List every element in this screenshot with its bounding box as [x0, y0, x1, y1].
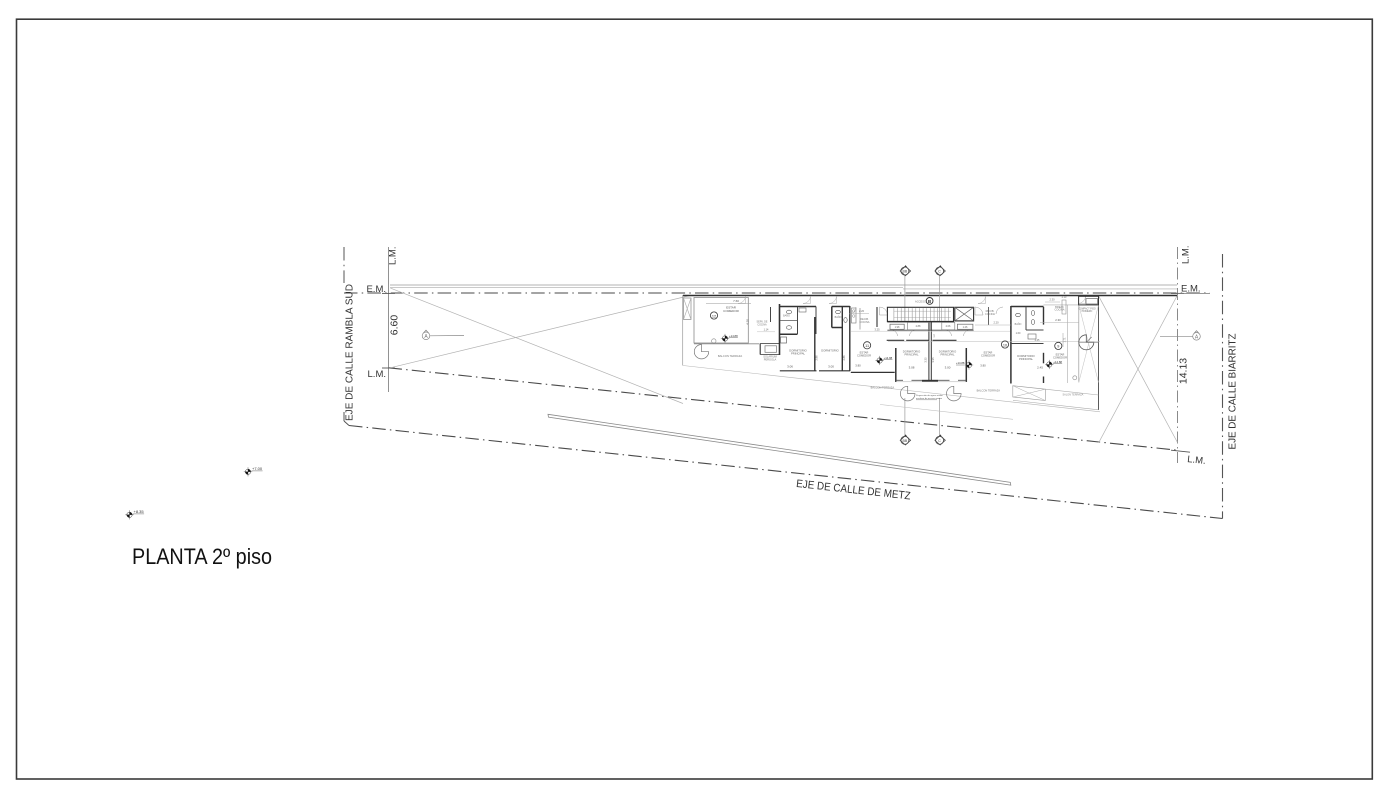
svg-text:2.06: 2.06: [946, 325, 951, 328]
svg-text:2.20: 2.20: [993, 321, 999, 325]
svg-text:COCINA: COCINA: [985, 312, 995, 316]
svg-text:SALON TERRAZA: SALON TERRAZA: [1063, 394, 1084, 397]
svg-text:PRINCIPAL: PRINCIPAL: [941, 353, 955, 357]
svg-text:1.14: 1.14: [764, 329, 769, 332]
svg-text:BAÑO: BAÑO: [835, 316, 842, 319]
svg-text:2.10: 2.10: [1062, 296, 1067, 299]
svg-text:C: C: [938, 270, 941, 274]
svg-text:COCINA: COCINA: [757, 323, 767, 326]
svg-text:L.M.: L.M.: [1187, 454, 1207, 467]
svg-text:BB: BB: [903, 270, 908, 274]
svg-text:COCINA: COCINA: [1054, 308, 1064, 312]
svg-text:2.86: 2.86: [815, 355, 819, 361]
svg-text:14.13: 14.13: [1178, 358, 1190, 384]
svg-text:COMEDOR: COMEDOR: [1053, 356, 1067, 360]
svg-text:escalera de acceso azotea: escalera de acceso azotea: [916, 397, 943, 400]
svg-text:BB: BB: [903, 439, 908, 443]
svg-text:12: 12: [712, 314, 716, 318]
svg-text:Proyección de aguas arriba: Proyección de aguas arriba: [916, 394, 943, 397]
svg-text:3.00: 3.00: [945, 366, 951, 370]
svg-text:PRIMERO: PRIMERO: [1082, 311, 1093, 313]
svg-text:+14.88: +14.88: [729, 334, 738, 338]
svg-text:PRINCIPAL: PRINCIPAL: [905, 353, 919, 357]
svg-text:3.00: 3.00: [828, 364, 834, 368]
svg-text:BAÑO: BAÑO: [783, 315, 790, 318]
svg-text:3.80: 3.80: [980, 364, 986, 368]
svg-text:L.M.: L.M.: [1181, 246, 1192, 264]
svg-text:E.M.: E.M.: [1181, 284, 1201, 295]
svg-text:L.M.: L.M.: [388, 247, 399, 265]
svg-text:2.88: 2.88: [916, 325, 921, 328]
svg-text:3.35: 3.35: [931, 357, 935, 363]
svg-text:2.45: 2.45: [1035, 339, 1040, 342]
svg-text:PERGOLA: PERGOLA: [764, 357, 777, 361]
svg-text:1.26: 1.26: [963, 326, 968, 329]
svg-text:3.08: 3.08: [909, 366, 915, 370]
svg-text:2.45: 2.45: [1037, 366, 1043, 370]
svg-text:10: 10: [1003, 343, 1007, 347]
svg-text:C: C: [938, 439, 941, 443]
svg-text:BALCON TERRAZA: BALCON TERRAZA: [871, 385, 895, 389]
svg-text:+8.35: +8.35: [134, 509, 145, 514]
svg-text:2.30: 2.30: [1055, 318, 1061, 322]
svg-text:+14.88: +14.88: [1053, 360, 1062, 364]
svg-text:1.60: 1.60: [1016, 332, 1021, 335]
svg-text:9: 9: [1057, 345, 1059, 349]
svg-text:+7.00: +7.00: [252, 466, 263, 471]
svg-text:PLANTA 2º piso: PLANTA 2º piso: [132, 544, 272, 569]
svg-text:3.06: 3.06: [787, 364, 793, 368]
svg-text:L.M.: L.M.: [368, 369, 386, 380]
svg-text:6.60: 6.60: [389, 315, 401, 336]
svg-text:BALCON TERRAZA: BALCON TERRAZA: [718, 354, 742, 358]
svg-text:BAÑO: BAÑO: [1015, 323, 1022, 326]
svg-text:ACCESO: ACCESO: [915, 299, 926, 303]
svg-text:COMEDOR: COMEDOR: [723, 309, 740, 313]
svg-text:3.80: 3.80: [855, 364, 861, 368]
svg-text:7.60: 7.60: [733, 299, 739, 303]
svg-text:11: 11: [865, 344, 869, 348]
svg-text:1.98: 1.98: [895, 326, 900, 329]
svg-text:2.30: 2.30: [1049, 298, 1055, 302]
svg-text:2.20: 2.20: [859, 309, 865, 313]
svg-text:+14.88: +14.88: [956, 361, 965, 365]
svg-text:DORMITORIO: DORMITORIO: [821, 349, 838, 353]
svg-text:EJE DE CALLE BIARRITZ: EJE DE CALLE BIARRITZ: [1227, 333, 1239, 450]
svg-text:2.86: 2.86: [842, 355, 846, 361]
svg-text:PRINCIPAL: PRINCIPAL: [791, 352, 805, 356]
svg-text:COMEDOR: COMEDOR: [857, 354, 871, 358]
svg-text:PRINCIPAL: PRINCIPAL: [1019, 357, 1033, 361]
svg-text:3.25: 3.25: [874, 328, 880, 332]
svg-text:+14.88: +14.88: [884, 356, 893, 360]
svg-text:3.35: 3.35: [924, 357, 928, 363]
svg-text:COCINA: COCINA: [859, 320, 869, 324]
svg-text:COMEDOR: COMEDOR: [981, 354, 995, 358]
svg-text:EJE DE CALLE RAMBLA SUD: EJE DE CALLE RAMBLA SUD: [344, 284, 356, 421]
svg-text:E.M.: E.M.: [366, 284, 386, 295]
svg-text:4.30: 4.30: [746, 319, 750, 325]
svg-text:BALCON TERRAZA: BALCON TERRAZA: [977, 388, 1001, 392]
